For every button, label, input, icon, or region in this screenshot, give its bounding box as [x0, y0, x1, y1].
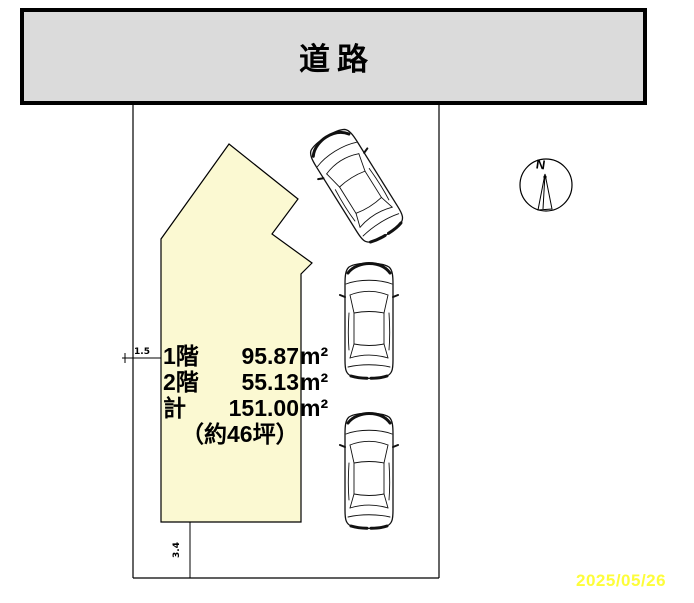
building-footprint: [161, 144, 312, 522]
compass-needle-tip: [543, 175, 546, 178]
floor-value: 95.87: [213, 343, 299, 369]
floor-area-table: 1階 95.87 m² 2階 55.13 m² 計 151.00 m² （約46…: [163, 343, 328, 447]
floor-area-row-1f: 1階 95.87 m²: [163, 343, 328, 369]
date-stamp: 2025/05/26: [576, 571, 666, 591]
car-bottom: [340, 413, 398, 528]
floor-label: 計: [163, 395, 213, 421]
floor-label: 2階: [163, 369, 213, 395]
compass-circle: [520, 159, 572, 211]
floor-unit: m²: [300, 369, 328, 395]
site-plan-drawing: [0, 0, 694, 603]
tsubo-note: （約46坪）: [163, 421, 328, 447]
parked-cars: [301, 122, 411, 529]
dimension-label-bottom: 3.4: [172, 539, 182, 561]
site-plan-page: 道路: [0, 0, 694, 603]
floor-unit: m²: [300, 343, 328, 369]
floor-value: 151.00: [213, 395, 299, 421]
dimension-label-left: 1.5: [131, 347, 153, 357]
floor-area-row-total: 計 151.00 m²: [163, 395, 328, 421]
floor-unit: m²: [300, 395, 328, 421]
car-middle: [340, 263, 398, 378]
car-top: [301, 122, 411, 250]
compass: [520, 159, 572, 211]
floor-area-row-2f: 2階 55.13 m²: [163, 369, 328, 395]
floor-label: 1階: [163, 343, 213, 369]
floor-value: 55.13: [213, 369, 299, 395]
